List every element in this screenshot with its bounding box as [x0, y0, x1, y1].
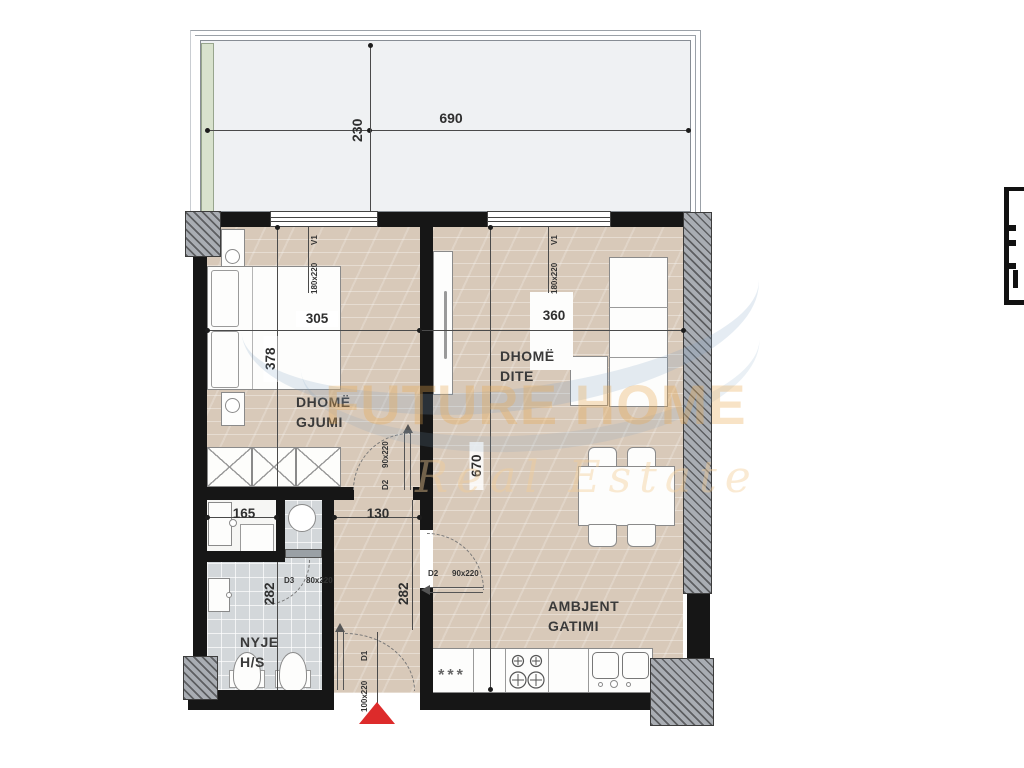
wall-right-lower	[687, 585, 710, 663]
door-leaf-arrow	[335, 623, 345, 632]
shower-drain	[288, 504, 316, 532]
counter-divider	[505, 649, 506, 692]
bath-label-line1: NYJE	[240, 632, 279, 652]
faucet-dot	[626, 682, 631, 687]
bidet	[279, 652, 307, 692]
key-plan-line	[1004, 187, 1009, 305]
dining-chair	[588, 524, 617, 547]
key-plan-notch	[1009, 225, 1016, 231]
wall-left	[193, 227, 207, 693]
sofa-cushion-line	[609, 357, 668, 358]
bedside-lamp	[225, 249, 240, 264]
door-leaf	[429, 587, 483, 593]
bedroom-label-line2: GJUMI	[296, 412, 351, 432]
door-leaf	[285, 549, 322, 558]
living-width-label: 360	[532, 308, 576, 324]
wall	[377, 212, 487, 227]
wall-divider	[420, 588, 433, 693]
wall-bath-east	[322, 500, 334, 692]
bath-label: NYJE H/S	[240, 632, 279, 673]
wall-bath-partition	[276, 497, 285, 555]
wall	[218, 212, 272, 227]
kitchen-label: AMBJENT GATIMI	[548, 596, 619, 637]
balcony-floor	[200, 40, 691, 212]
wardrobe	[207, 447, 341, 487]
column-hatch	[183, 656, 218, 700]
window-bedroom	[270, 211, 378, 227]
dim-dot	[205, 128, 210, 133]
window-code: V1	[551, 229, 559, 245]
dim-dot	[274, 515, 279, 520]
floor-plan: 690 230 ***	[0, 0, 1024, 768]
bedside-lamp	[225, 398, 240, 413]
door-leaf	[337, 632, 344, 690]
wardrobe-section	[252, 447, 297, 487]
stove	[507, 650, 547, 692]
key-plan-notch	[1009, 263, 1016, 269]
hall-length-label: 282	[397, 572, 411, 616]
hall-length-dimline	[412, 500, 413, 630]
tv-cabinet	[433, 251, 453, 395]
window-code: V1	[311, 229, 319, 245]
counter-divider	[473, 649, 474, 692]
dim-dot	[488, 687, 493, 692]
door-leaf	[404, 433, 411, 490]
balcony-width-label: 690	[428, 110, 474, 126]
dining-chair	[627, 524, 656, 547]
balcony-depth-label: 230	[350, 104, 364, 156]
wall-right-hatch	[683, 212, 712, 594]
door-size: 80x220	[306, 577, 333, 585]
washbasin-faucet	[226, 592, 232, 598]
key-plan-notch	[1009, 240, 1016, 246]
door-code: D2	[428, 570, 438, 578]
dim-dot	[686, 128, 691, 133]
dim-dot	[205, 328, 210, 333]
sofa-cushion-line	[609, 307, 668, 308]
tv	[444, 291, 447, 359]
faucet-dot	[598, 682, 603, 687]
living-label-line2: DITE	[500, 366, 555, 386]
wall	[610, 212, 685, 227]
bedroom-width-label: 305	[296, 311, 338, 327]
washing-machine	[240, 524, 274, 552]
window-ref-line	[308, 227, 309, 293]
key-plan	[1004, 187, 1024, 305]
bath-label-line2: H/S	[240, 652, 279, 672]
balcony-depth-dimline	[370, 45, 371, 213]
bedroom-length-label: 378	[264, 336, 278, 382]
door-code: D2	[382, 472, 390, 490]
counter-divider	[548, 649, 549, 692]
wardrobe-section	[207, 447, 252, 487]
door-code: D3	[284, 577, 294, 585]
dim-dot	[681, 328, 686, 333]
window-ref-line	[548, 227, 549, 293]
door-size: 90x220	[382, 428, 390, 468]
window-size: 180x220	[311, 250, 319, 294]
living-label-line1: DHOMË	[500, 346, 555, 366]
dim-dot	[368, 43, 373, 48]
living-length-label: 670	[470, 442, 484, 490]
balcony-width-dimline	[207, 130, 688, 131]
duvet-line	[252, 267, 253, 389]
living-label: DHOMË DITE	[500, 346, 555, 387]
dim-dot	[417, 515, 422, 520]
pillow	[211, 270, 239, 327]
entrance-marker	[359, 702, 395, 724]
window-size: 180x220	[551, 250, 559, 294]
wall-bedroom-south	[193, 487, 354, 500]
bedroom-label: DHOMË GJUMI	[296, 392, 351, 433]
column-hatch	[185, 211, 221, 257]
hall-width-label: 130	[358, 506, 398, 522]
kitchen-label-line1: AMBJENT	[548, 596, 619, 616]
dim-dot	[488, 225, 493, 230]
key-plan-line	[1004, 300, 1024, 305]
window-living	[487, 211, 611, 227]
faucet-dot	[610, 680, 618, 688]
living-length-dimline	[490, 227, 491, 690]
door-leaf-arrow	[403, 424, 413, 433]
key-plan-notch	[1013, 270, 1018, 288]
bath-width-label: 165	[226, 506, 262, 522]
pillow	[211, 331, 239, 388]
wall-bottom	[420, 693, 653, 710]
kitchen-sink-bowl	[622, 652, 649, 679]
bath-length-label: 282	[263, 572, 277, 616]
kitchen-sink-bowl	[592, 652, 619, 679]
counter-divider	[588, 649, 589, 692]
kitchen-label-line2: GATIMI	[548, 616, 619, 636]
door-size: 90x220	[452, 570, 479, 578]
dim-dot	[275, 225, 280, 230]
sofa	[609, 257, 668, 407]
dining-table	[578, 466, 675, 526]
dim-dot	[205, 515, 210, 520]
wall-stub	[413, 487, 420, 500]
width-dimline	[207, 330, 683, 331]
door-code: D1	[361, 643, 369, 661]
door-leaf-arrow	[421, 585, 430, 595]
dim-dot	[332, 515, 337, 520]
bedroom-label-line1: DHOMË	[296, 392, 351, 412]
dim-dot	[417, 328, 422, 333]
fridge-freezer-stars: ***	[432, 668, 472, 684]
coffee-table	[570, 356, 608, 406]
wardrobe-section	[296, 447, 341, 487]
wall-divider	[420, 227, 433, 530]
door-ref-line	[377, 632, 378, 710]
column-hatch	[650, 658, 714, 726]
